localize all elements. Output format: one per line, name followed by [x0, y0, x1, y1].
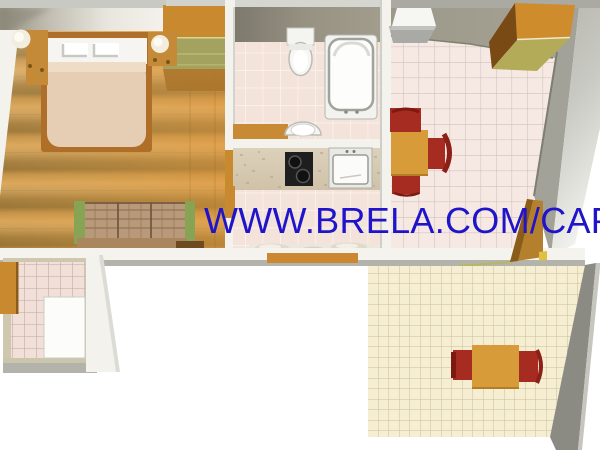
svg-text:WWW.BRELA.COM/CAP: WWW.BRELA.COM/CAP — [204, 200, 600, 241]
